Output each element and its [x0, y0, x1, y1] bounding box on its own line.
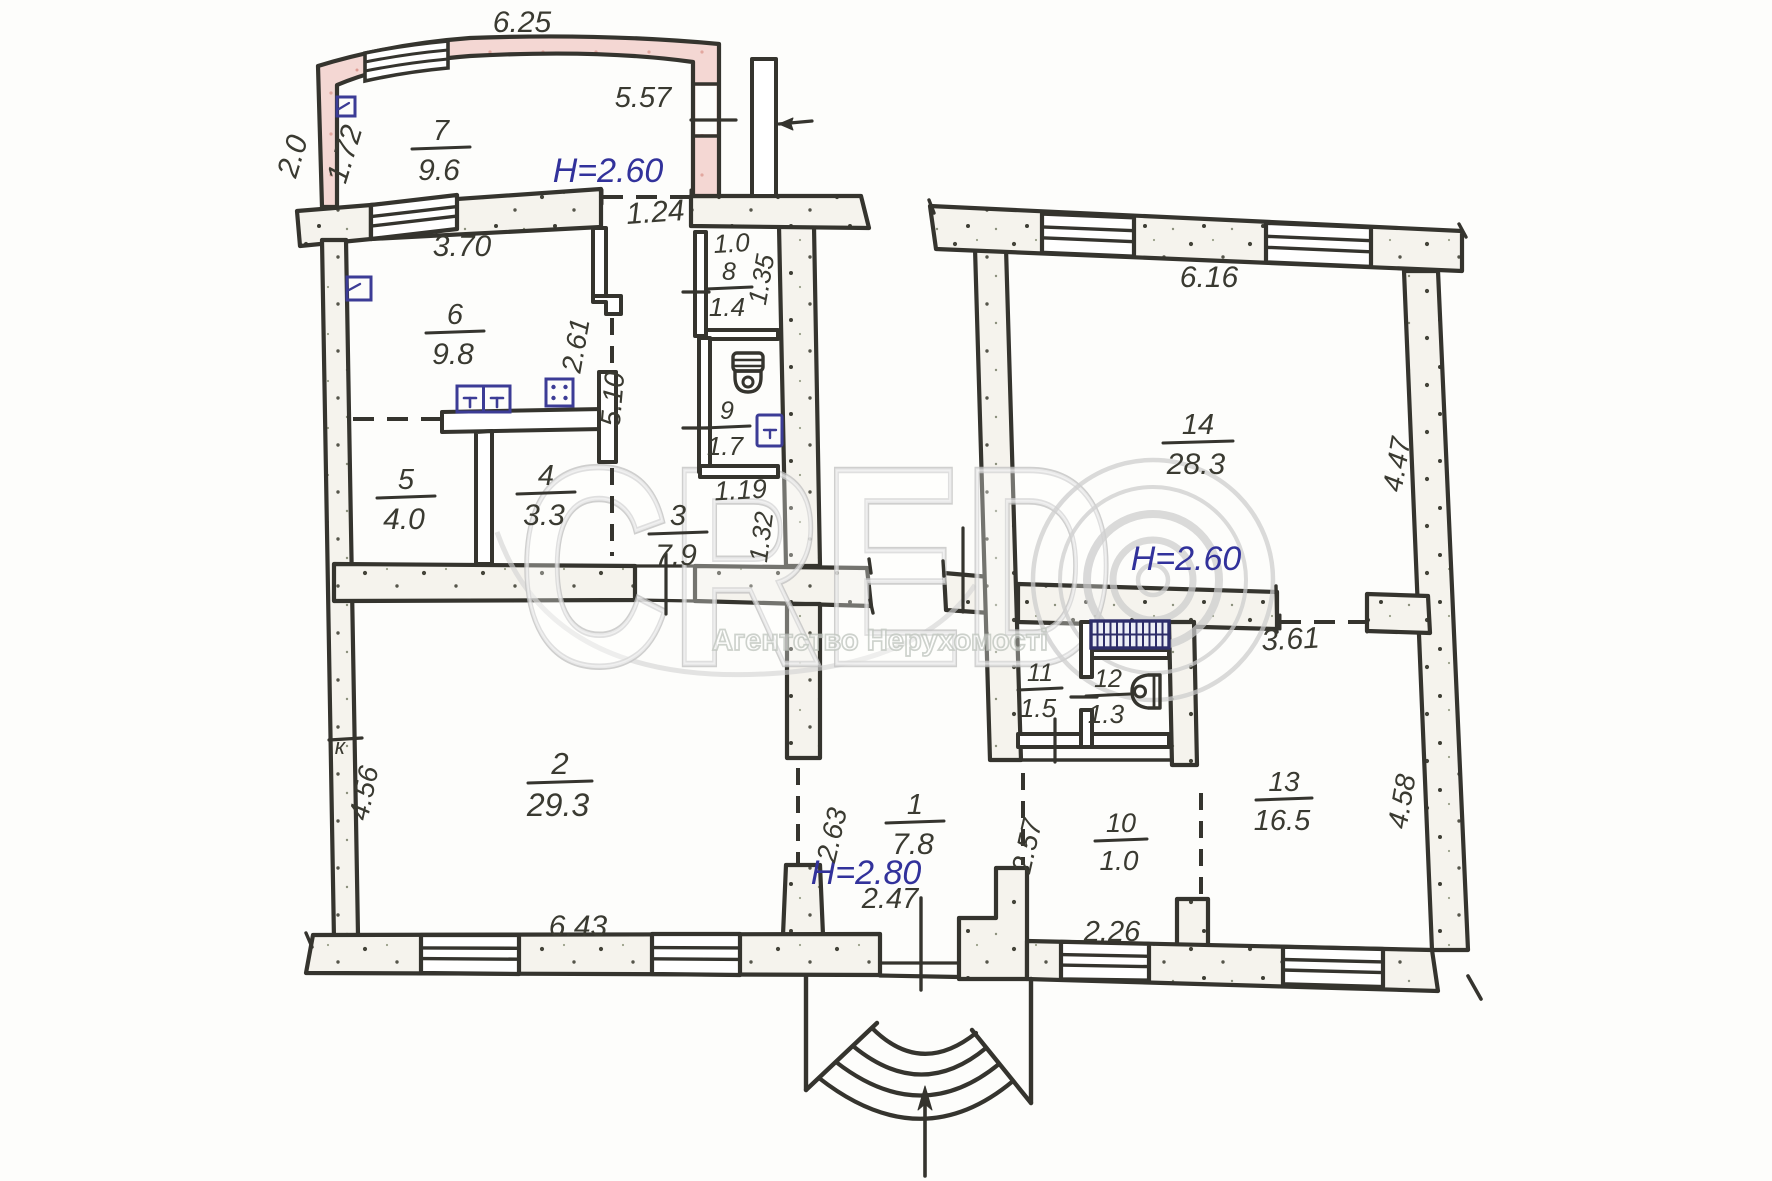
- svg-text:9: 9: [720, 397, 734, 425]
- svg-text:3.61: 3.61: [1260, 622, 1320, 658]
- svg-text:10: 10: [1106, 808, 1136, 838]
- svg-text:Агентство Нерухомості: Агентство Нерухомості: [712, 624, 1048, 657]
- svg-text:1.19: 1.19: [713, 474, 767, 507]
- svg-text:1.0: 1.0: [713, 227, 751, 259]
- svg-text:4.0: 4.0: [383, 503, 425, 536]
- svg-text:5.57: 5.57: [615, 82, 673, 114]
- svg-text:1: 1: [907, 789, 923, 821]
- svg-text:3.70: 3.70: [433, 230, 492, 263]
- svg-text:29.3: 29.3: [526, 787, 589, 823]
- svg-text:7.9: 7.9: [655, 539, 697, 572]
- svg-text:9.8: 9.8: [432, 338, 474, 371]
- svg-text:7: 7: [433, 115, 451, 147]
- svg-text:4: 4: [538, 460, 554, 492]
- svg-text:2.26: 2.26: [1083, 916, 1141, 948]
- svg-text:1.4: 1.4: [709, 292, 745, 322]
- svg-text:6.16: 6.16: [1180, 261, 1239, 294]
- svg-text:6.43: 6.43: [549, 910, 608, 943]
- svg-text:13: 13: [1268, 766, 1300, 797]
- svg-text:11: 11: [1027, 659, 1053, 687]
- svg-text:6.25: 6.25: [493, 6, 552, 39]
- svg-text:1.7: 1.7: [707, 431, 745, 461]
- svg-text:6: 6: [447, 299, 464, 331]
- svg-text:28.3: 28.3: [1166, 448, 1226, 481]
- svg-text:7.8: 7.8: [892, 828, 934, 861]
- svg-text:1.24: 1.24: [625, 194, 686, 231]
- svg-text:16.5: 16.5: [1254, 805, 1311, 837]
- svg-text:к: к: [335, 734, 347, 759]
- svg-text:3.3: 3.3: [523, 499, 565, 532]
- svg-text:1.5: 1.5: [1020, 693, 1057, 723]
- svg-text:14: 14: [1182, 409, 1214, 441]
- svg-text:5: 5: [398, 464, 415, 496]
- svg-text:1.32: 1.32: [743, 509, 779, 563]
- svg-text:H=2.60: H=2.60: [553, 152, 664, 190]
- svg-text:1.3: 1.3: [1088, 699, 1125, 729]
- svg-text:8: 8: [722, 258, 736, 286]
- svg-text:3: 3: [670, 500, 686, 532]
- svg-text:2.47: 2.47: [861, 883, 920, 915]
- svg-text:12: 12: [1094, 665, 1122, 693]
- svg-text:1.0: 1.0: [1100, 845, 1139, 876]
- svg-text:H=2.60: H=2.60: [1131, 540, 1242, 578]
- svg-text:9.6: 9.6: [418, 154, 460, 187]
- svg-text:2: 2: [550, 746, 568, 781]
- svg-text:5.10: 5.10: [595, 370, 631, 427]
